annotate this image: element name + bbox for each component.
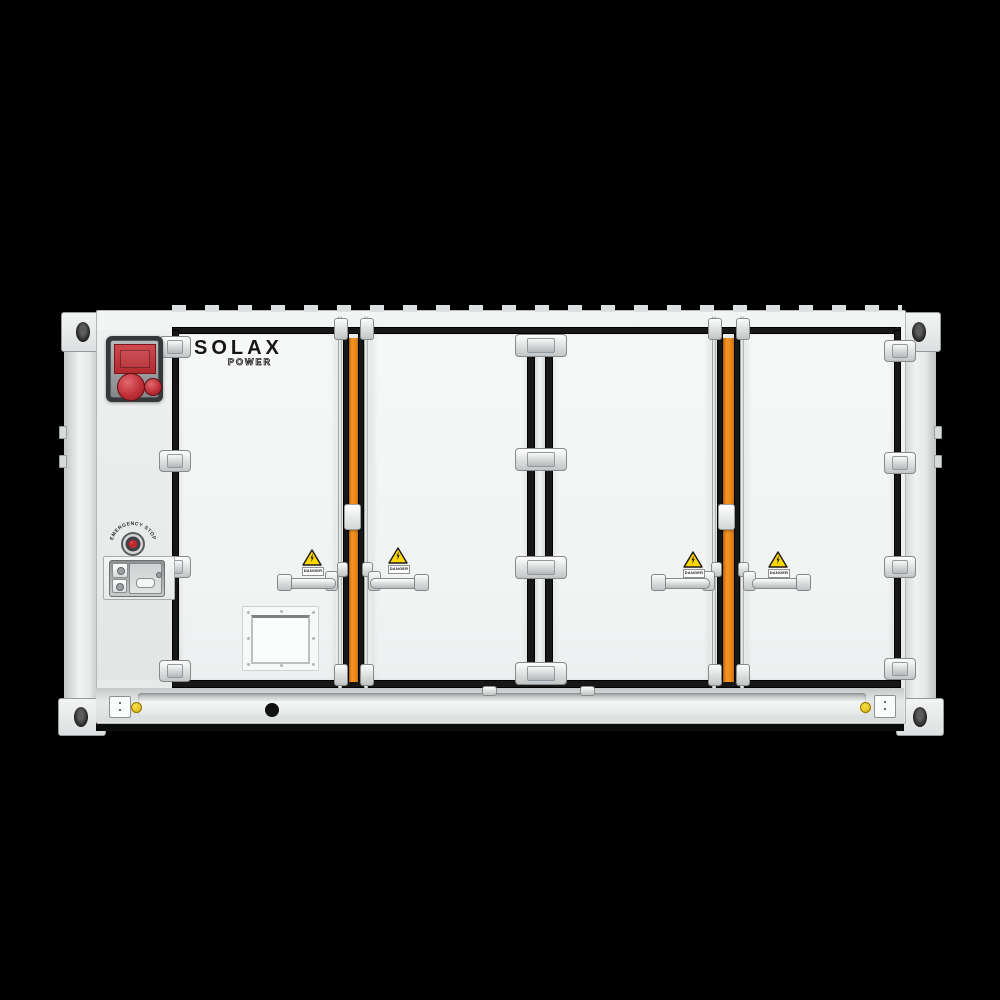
alarm-display bbox=[114, 344, 156, 374]
casting-hole bbox=[74, 707, 88, 727]
product-render-storage-container: DANGER DANGER DANGER DANGER SOLAX POWER … bbox=[0, 0, 1000, 1000]
danger-label: DANGER bbox=[302, 567, 324, 576]
emergency-stop-button bbox=[129, 540, 138, 549]
door-hinge bbox=[515, 334, 567, 357]
roof-clips bbox=[172, 305, 902, 312]
handle-grip bbox=[414, 574, 429, 591]
danger-label: DANGER bbox=[683, 569, 705, 578]
door-hinge bbox=[515, 662, 567, 685]
handle-grip bbox=[277, 574, 292, 591]
rail-keeper bbox=[580, 686, 595, 696]
ground-point-icon bbox=[131, 702, 142, 713]
casting-hole bbox=[913, 707, 927, 727]
door-hinge bbox=[159, 660, 191, 682]
door-lock-panel bbox=[103, 556, 175, 600]
rod-bracket bbox=[708, 318, 722, 340]
lock-rod bbox=[740, 316, 744, 706]
warning-triangle-icon bbox=[388, 547, 408, 564]
lock-dot bbox=[156, 572, 162, 578]
fire-alarm-panel bbox=[106, 336, 163, 402]
door-hinge bbox=[159, 450, 191, 472]
latch-recess bbox=[129, 563, 162, 594]
rod-bracket bbox=[360, 318, 374, 340]
gasket-door2-right bbox=[527, 334, 535, 680]
brand-logo-sub: POWER bbox=[194, 358, 272, 367]
door-hinge bbox=[515, 556, 567, 579]
post-tab bbox=[934, 455, 942, 468]
warning-triangle-icon bbox=[683, 551, 703, 568]
lock-dot bbox=[117, 567, 125, 575]
service-socket-left bbox=[109, 696, 131, 718]
handle-grip bbox=[796, 574, 811, 591]
gasket-door3-left bbox=[545, 334, 553, 680]
rod-bracket bbox=[736, 664, 750, 686]
lock-cylinder-top bbox=[112, 563, 128, 578]
door-hinge bbox=[884, 340, 916, 362]
service-socket-right bbox=[874, 695, 896, 718]
ground-point-icon bbox=[860, 702, 871, 713]
corner-post-left bbox=[64, 312, 100, 732]
gasket-door4-right bbox=[894, 330, 901, 680]
access-hatch-inner bbox=[251, 615, 310, 664]
access-hatch bbox=[242, 606, 319, 671]
casting-hole bbox=[912, 322, 926, 342]
alarm-button-large bbox=[117, 373, 145, 401]
door-hinge bbox=[884, 452, 916, 474]
lock-rod bbox=[364, 316, 368, 706]
door-hinge bbox=[884, 556, 916, 578]
alarm-button-small bbox=[144, 378, 162, 396]
door-2 bbox=[372, 334, 527, 680]
warning-triangle-icon bbox=[302, 549, 322, 566]
casting-hole bbox=[76, 322, 90, 342]
post-tab bbox=[934, 426, 942, 439]
rod-bracket bbox=[736, 318, 750, 340]
gasket-top bbox=[172, 327, 901, 334]
drain-hole bbox=[265, 703, 279, 717]
door-3 bbox=[553, 334, 710, 680]
rod-bracket bbox=[334, 664, 348, 686]
lock-dot bbox=[116, 583, 124, 591]
lock-rod bbox=[712, 316, 716, 706]
latch-handle bbox=[136, 578, 155, 588]
post-tab bbox=[59, 426, 67, 439]
rod-clamp bbox=[718, 504, 735, 530]
door-hinge bbox=[884, 658, 916, 680]
emergency-stop: EMERGENCY STOP bbox=[101, 500, 165, 564]
handle-grip bbox=[651, 574, 666, 591]
hinge-column-center bbox=[535, 334, 545, 680]
rod-bracket bbox=[334, 318, 348, 340]
warning-triangle-icon bbox=[768, 551, 788, 568]
alarm-display-inner bbox=[120, 350, 150, 368]
door-hinge bbox=[515, 448, 567, 471]
bottom-rail-recess bbox=[138, 693, 866, 716]
rod-bracket bbox=[360, 664, 374, 686]
rod-clamp bbox=[344, 504, 361, 530]
rod-bracket bbox=[708, 664, 722, 686]
brand-logo: SOLAX bbox=[194, 338, 283, 358]
rod-keeper bbox=[337, 562, 348, 577]
door-hinge bbox=[159, 336, 191, 358]
post-tab bbox=[59, 455, 67, 468]
rail-keeper bbox=[482, 686, 497, 696]
lock-rod bbox=[338, 316, 342, 706]
danger-label: DANGER bbox=[768, 569, 790, 578]
door-4 bbox=[746, 334, 894, 680]
danger-label: DANGER bbox=[388, 565, 410, 574]
lock-cylinder-bottom bbox=[112, 579, 127, 593]
gasket-door1-left bbox=[172, 330, 179, 680]
